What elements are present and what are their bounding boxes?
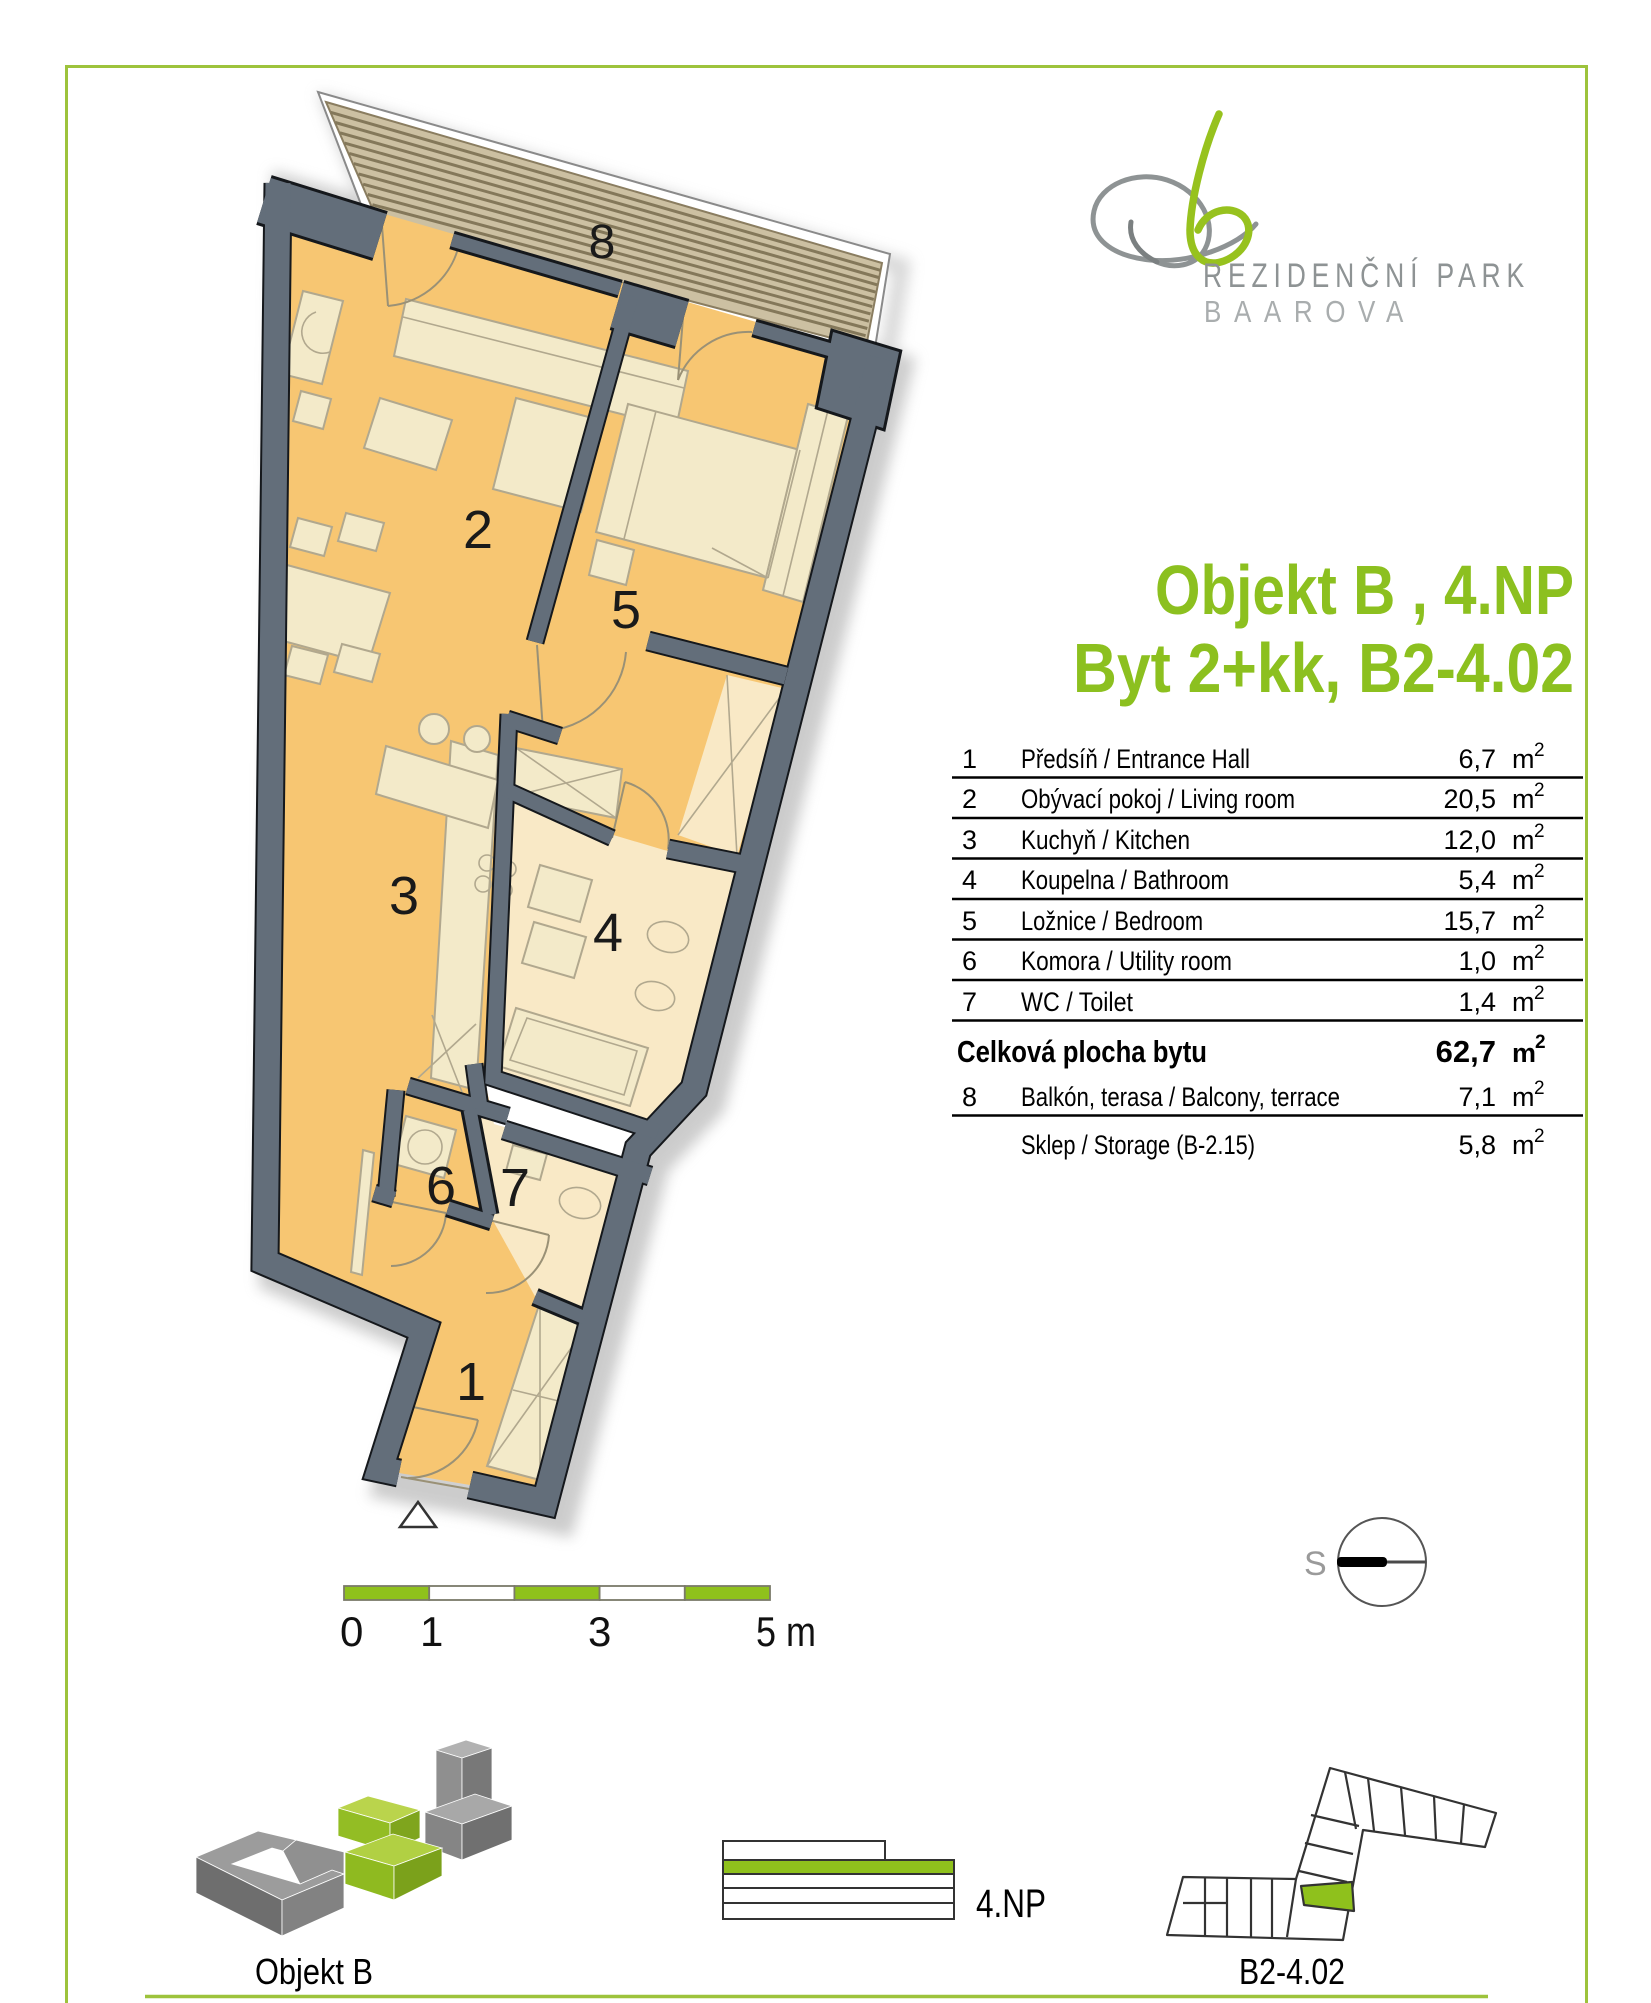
svg-text:4: 4 (593, 903, 623, 963)
svg-text:Předsíň / Entrance Hall: Předsíň / Entrance Hall (1021, 744, 1250, 774)
svg-text:Balkón, terasa / Balcony, terr: Balkón, terasa / Balcony, terrace (1021, 1082, 1340, 1112)
svg-text:Objekt B , 4.NP: Objekt B , 4.NP (1155, 551, 1574, 629)
svg-text:6: 6 (962, 946, 977, 976)
svg-text:Celková plocha bytu: Celková plocha bytu (957, 1034, 1207, 1069)
svg-text:8: 8 (589, 216, 616, 269)
svg-text:REZIDENČNÍ PARK: REZIDENČNÍ PARK (1203, 257, 1530, 295)
svg-text:Objekt B: Objekt B (255, 1951, 373, 1992)
svg-text:5: 5 (611, 580, 641, 640)
svg-text:2: 2 (1534, 740, 1545, 761)
svg-text:62,7: 62,7 (1436, 1034, 1496, 1069)
svg-text:m: m (1512, 744, 1535, 774)
svg-text:1: 1 (420, 1608, 443, 1655)
svg-text:B2-4.02: B2-4.02 (1239, 1951, 1345, 1992)
svg-text:8: 8 (962, 1082, 977, 1112)
svg-text:2: 2 (1534, 1126, 1545, 1147)
svg-text:m: m (1512, 865, 1535, 895)
svg-text:m: m (1512, 825, 1535, 855)
svg-text:Obývací pokoj / Living room: Obývací pokoj / Living room (1021, 784, 1295, 814)
svg-text:m: m (1512, 946, 1535, 976)
svg-text:2: 2 (1535, 1032, 1546, 1053)
svg-text:5: 5 (962, 906, 977, 936)
svg-text:0: 0 (340, 1608, 363, 1655)
svg-text:12,0: 12,0 (1443, 825, 1496, 855)
svg-text:Sklep / Storage (B-2.15): Sklep / Storage (B-2.15) (1021, 1130, 1255, 1160)
svg-text:m: m (1512, 906, 1535, 936)
svg-text:m: m (1512, 1038, 1536, 1068)
svg-text:1,0: 1,0 (1458, 946, 1496, 976)
svg-text:5,4: 5,4 (1458, 865, 1496, 895)
svg-text:6,7: 6,7 (1458, 744, 1496, 774)
svg-text:20,5: 20,5 (1443, 784, 1496, 814)
svg-text:m: m (1512, 784, 1535, 814)
svg-text:5 m: 5 m (756, 1608, 816, 1655)
svg-text:2: 2 (463, 500, 493, 560)
svg-text:2: 2 (1534, 902, 1545, 923)
svg-text:m: m (1512, 987, 1535, 1017)
svg-text:1: 1 (456, 1352, 486, 1412)
svg-text:BAAROVA: BAAROVA (1204, 294, 1416, 329)
svg-text:2: 2 (1534, 861, 1545, 882)
svg-text:1: 1 (962, 744, 977, 774)
svg-text:3: 3 (389, 866, 419, 926)
svg-text:7,1: 7,1 (1458, 1082, 1496, 1112)
svg-text:WC / Toilet: WC / Toilet (1021, 987, 1133, 1017)
svg-text:7: 7 (962, 987, 977, 1017)
svg-text:3: 3 (588, 1608, 611, 1655)
svg-text:4: 4 (962, 865, 977, 895)
svg-text:5,8: 5,8 (1458, 1130, 1496, 1160)
svg-text:7: 7 (500, 1158, 530, 1218)
svg-text:Kuchyň / Kitchen: Kuchyň / Kitchen (1021, 825, 1190, 855)
svg-text:Ložnice / Bedroom: Ložnice / Bedroom (1021, 906, 1203, 936)
svg-text:2: 2 (1534, 780, 1545, 801)
svg-text:2: 2 (962, 784, 977, 814)
svg-text:Komora / Utility room: Komora / Utility room (1021, 946, 1232, 976)
svg-text:m: m (1512, 1130, 1535, 1160)
svg-text:m: m (1512, 1082, 1535, 1112)
svg-text:S: S (1304, 1545, 1327, 1583)
svg-text:15,7: 15,7 (1443, 906, 1496, 936)
svg-text:4.NP: 4.NP (976, 1882, 1046, 1926)
svg-text:2: 2 (1534, 1078, 1545, 1099)
svg-text:2: 2 (1534, 821, 1545, 842)
svg-text:3: 3 (962, 825, 977, 855)
svg-text:Koupelna / Bathroom: Koupelna / Bathroom (1021, 865, 1229, 895)
svg-text:6: 6 (426, 1156, 456, 1216)
svg-text:Byt 2+kk, B2-4.02: Byt 2+kk, B2-4.02 (1073, 629, 1574, 707)
svg-text:1,4: 1,4 (1458, 987, 1496, 1017)
svg-text:2: 2 (1534, 942, 1545, 963)
svg-text:2: 2 (1534, 983, 1545, 1004)
